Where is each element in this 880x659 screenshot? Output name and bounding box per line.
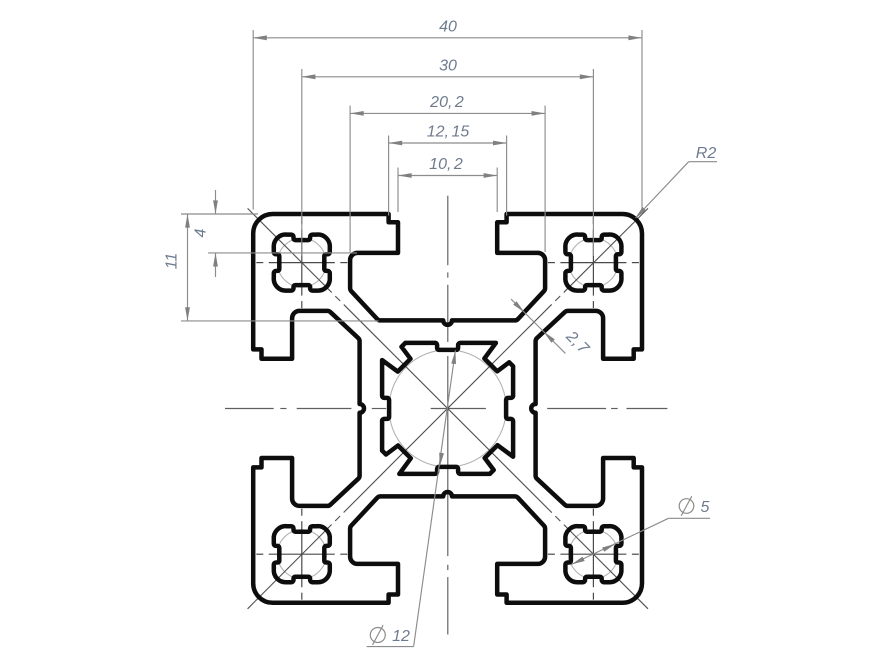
svg-text:12: 12 (392, 628, 410, 645)
svg-text:10,2: 10,2 (429, 156, 463, 173)
svg-text:40: 40 (439, 19, 457, 36)
svg-text:R2: R2 (696, 145, 717, 162)
svg-text:20,2: 20,2 (429, 94, 464, 111)
svg-text:2,7: 2,7 (562, 328, 593, 359)
svg-text:30: 30 (439, 58, 457, 75)
svg-text:4: 4 (193, 228, 210, 237)
svg-text:11: 11 (164, 253, 181, 270)
svg-text:12,15: 12,15 (427, 124, 470, 141)
svg-text:5: 5 (701, 499, 710, 516)
